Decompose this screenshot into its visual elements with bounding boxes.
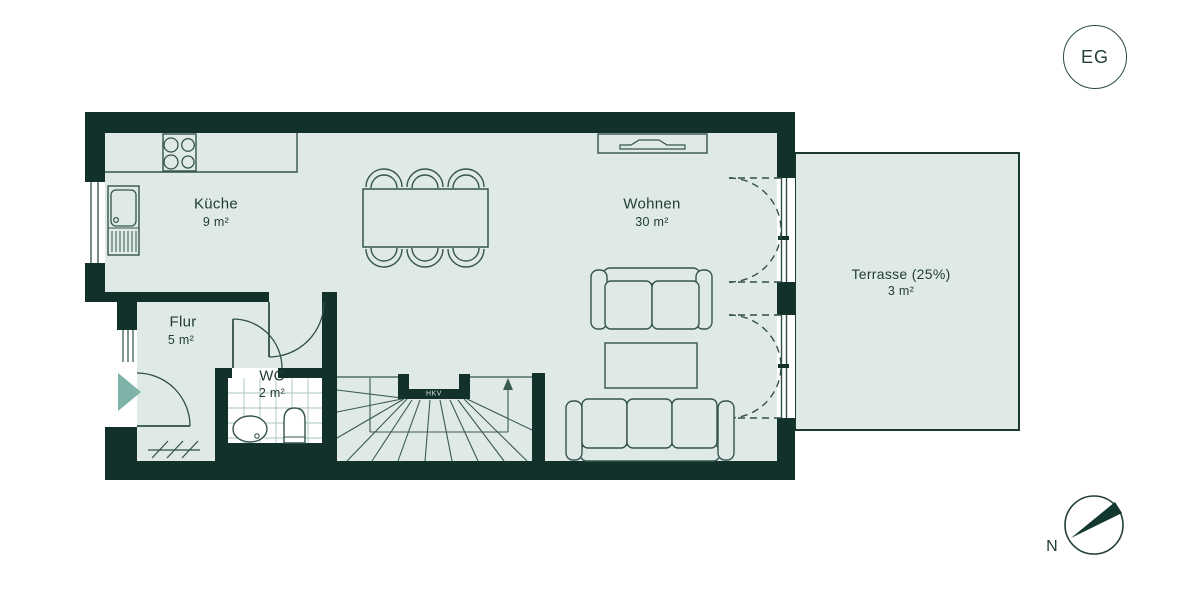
room-label-wohnen: Wohnen <box>623 196 680 213</box>
flur-window <box>117 330 137 362</box>
compass-icon <box>1065 496 1123 554</box>
room-label-terrasse: Terrasse (25%) <box>851 266 950 282</box>
room-label-kueche: Küche <box>194 196 238 213</box>
level-badge: EG <box>1063 25 1127 89</box>
kitchen-window <box>85 182 105 263</box>
wall-top <box>85 112 795 133</box>
wall-right-mid <box>777 282 795 315</box>
room-area-kueche: 9 m² <box>203 215 229 229</box>
floorplan-drawing <box>0 0 1200 600</box>
wall-right-top <box>777 133 795 178</box>
level-badge-text: EG <box>1081 47 1109 68</box>
wall-wc-bottom <box>228 443 322 461</box>
room-area-wohnen: 30 m² <box>635 215 668 229</box>
compass-north-label: N <box>1046 538 1058 556</box>
room-area-terrasse: 3 m² <box>888 284 914 298</box>
dining-table <box>363 189 488 247</box>
wall-bottom <box>105 461 795 480</box>
tv-sideboard <box>598 134 707 153</box>
wall-left-upper <box>85 112 105 182</box>
sofa-2seat <box>591 268 712 329</box>
room-area-flur: 5 m² <box>168 333 194 347</box>
room-label-wc: WC <box>259 368 285 385</box>
coffee-table <box>605 343 697 388</box>
wc-basin-icon <box>233 416 267 442</box>
wall-wc-left <box>215 368 228 461</box>
wall-wc-top-right <box>278 368 337 378</box>
wall-kueche-flur <box>85 292 269 302</box>
room-area-wc: 2 m² <box>259 386 285 400</box>
wall-right-bottom <box>777 418 795 480</box>
floorplan-canvas: Küche 9 m² Wohnen 30 m² Flur 5 m² WC 2 m… <box>0 0 1200 600</box>
sofa-3seat <box>566 399 734 461</box>
hkv-label: HKV <box>426 391 442 398</box>
wall-stairhall-right <box>532 373 545 461</box>
wall-flur-west <box>117 302 137 330</box>
wc-toilet-icon <box>284 408 305 443</box>
room-label-flur: Flur <box>169 314 196 331</box>
wall-below-entrance <box>105 427 137 461</box>
